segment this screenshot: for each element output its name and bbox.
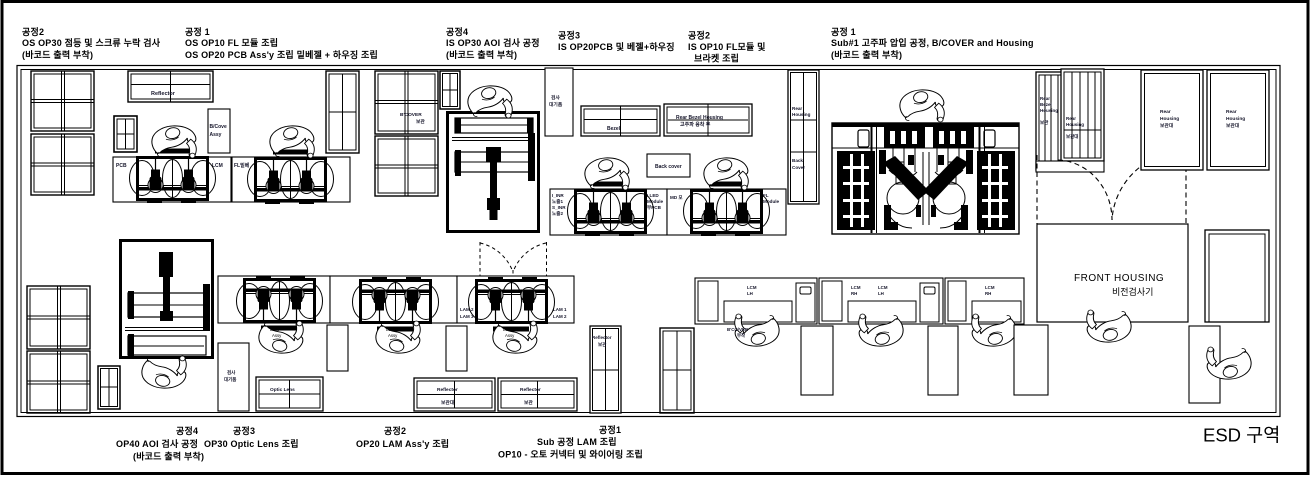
svg-text:IS OP30 AOI 검사 공정: IS OP30 AOI 검사 공정 [446, 37, 540, 48]
svg-text:공정3: 공정3 [233, 425, 255, 436]
svg-text:Sub#1 고주파 압입 공정, B/COVER and H: Sub#1 고주파 압입 공정, B/COVER and Housing [831, 37, 1034, 48]
svg-text:공정4: 공정4 [176, 425, 198, 436]
svg-text:Back: Back [792, 158, 803, 163]
svg-text:FRONT HOUSING: FRONT HOUSING [1074, 273, 1164, 284]
svg-text:보관: 보관 [524, 399, 533, 406]
svg-text:보관: 보관 [598, 341, 607, 348]
svg-text:부착: 부착 [737, 332, 745, 339]
svg-text:OP10 - 오토 커넥터 및 와이어링 조립: OP10 - 오토 커넥터 및 와이어링 조립 [498, 449, 643, 460]
svg-text:MD 모: MD 모 [670, 194, 683, 200]
svg-text:고주파 융착 후: 고주파 융착 후 [680, 121, 711, 128]
svg-text:Lens: Lens [270, 327, 279, 332]
svg-text:(바코드 출력 부착): (바코드 출력 부착) [22, 49, 93, 60]
svg-text:Housing: Housing [792, 112, 811, 117]
svg-text:Lens: Lens [386, 327, 395, 332]
svg-text:Module: Module [647, 199, 664, 204]
svg-text:Housing: Housing [1066, 122, 1084, 127]
svg-text:Reflector: Reflector [592, 335, 612, 340]
svg-text:Rear Bezel Housing: Rear Bezel Housing [676, 115, 723, 121]
svg-text:Assy: Assy [210, 132, 222, 138]
svg-text:Sub 공정 LAM 조립: Sub 공정 LAM 조립 [537, 436, 617, 447]
svg-text:공정 1: 공정 1 [185, 26, 210, 37]
svg-text:보관대: 보관대 [441, 399, 455, 406]
svg-text:보관: 보관 [416, 118, 425, 125]
svg-text:Cover: Cover [792, 165, 805, 170]
svg-text:Housing: Housing [1040, 108, 1058, 113]
svg-text:RH: RH [985, 291, 991, 296]
svg-text:LAM 1: LAM 1 [553, 307, 567, 312]
svg-text:Housing: Housing [1160, 116, 1179, 122]
svg-text:브라켓 조립: 브라켓 조립 [694, 53, 739, 64]
svg-text:Rear: Rear [792, 106, 802, 111]
svg-text:검사: 검사 [551, 94, 560, 101]
svg-text:LH: LH [878, 291, 884, 296]
svg-text:Reflector: Reflector [520, 387, 541, 393]
svg-text:공정1: 공정1 [599, 424, 621, 435]
svg-text:대기품: 대기품 [549, 101, 563, 108]
svg-text:ESD 구역: ESD 구역 [1203, 425, 1280, 446]
svg-text:공정 1: 공정 1 [831, 26, 856, 37]
svg-text:LAM 2: LAM 2 [460, 307, 474, 312]
svg-text:LCM: LCM [851, 285, 861, 290]
svg-text:Optic Lens: Optic Lens [270, 387, 295, 393]
svg-text:공정2: 공정2 [22, 26, 44, 37]
svg-text:RH: RH [851, 291, 857, 296]
svg-text:I_INR: I_INR [552, 193, 564, 198]
svg-text:B/Cove: B/Cove [210, 124, 227, 130]
svg-text:Assy: Assy [272, 333, 282, 338]
svg-text:B'CO/VER: B'CO/VER [727, 327, 749, 332]
svg-text:Module: Module [763, 199, 780, 204]
svg-text:LCM: LCM [878, 285, 888, 290]
svg-text:OS OP10 FL 모듈 조립: OS OP10 FL 모듈 조립 [185, 37, 278, 48]
svg-text:LAM 2: LAM 2 [553, 314, 567, 319]
svg-text:검사: 검사 [227, 369, 236, 376]
svg-text:OP30 Optic Lens 조립: OP30 Optic Lens 조립 [204, 438, 299, 449]
svg-text:LCM: LCM [985, 285, 995, 290]
svg-text:공정2: 공정2 [688, 30, 710, 41]
svg-text:노즐2: 노즐2 [552, 210, 563, 217]
svg-text:대기품: 대기품 [224, 376, 236, 383]
svg-text:FL밑베: FL밑베 [234, 162, 250, 169]
svg-text:보관대: 보관대 [1160, 122, 1174, 129]
svg-text:비전검사기: 비전검사기 [1112, 286, 1153, 297]
svg-text:FL: FL [763, 193, 769, 198]
svg-text:노즐1: 노즐1 [552, 198, 563, 205]
svg-text:(바코드 출력 부착): (바코드 출력 부착) [446, 49, 517, 60]
svg-text:(바코드 출력 부착): (바코드 출력 부착) [133, 450, 204, 461]
svg-text:Reflector: Reflector [151, 91, 176, 97]
svg-text:보관: 보관 [1040, 119, 1049, 126]
svg-text:PCB: PCB [116, 163, 127, 169]
svg-text:B'COVER: B'COVER [400, 112, 422, 118]
svg-text:Lens: Lens [503, 327, 512, 332]
svg-text:공정3: 공정3 [558, 30, 580, 41]
svg-text:LCM: LCM [747, 285, 757, 290]
svg-text:보관대: 보관대 [1226, 122, 1240, 129]
svg-text:Bezel: Bezel [1040, 102, 1052, 107]
svg-text:Bezel: Bezel [607, 126, 621, 132]
svg-text:S_INR: S_INR [552, 205, 566, 210]
svg-text:IS OP10 FL모듈 및: IS OP10 FL모듈 및 [688, 41, 766, 52]
svg-text:Rear: Rear [1040, 96, 1050, 101]
svg-text:OP20 LAM Ass'y 조립: OP20 LAM Ass'y 조립 [356, 438, 449, 449]
svg-text:Back cover: Back cover [655, 164, 682, 170]
svg-text:OS OP20 PCB Ass'y 조립 밑베젤 + 하우징: OS OP20 PCB Ass'y 조립 밑베젤 + 하우징 조립 [185, 49, 378, 60]
svg-text:Assy: Assy [388, 333, 398, 338]
svg-text:LH: LH [747, 291, 753, 296]
svg-text:IS OP20PCB 및 베젤+하우징: IS OP20PCB 및 베젤+하우징 [558, 41, 675, 52]
svg-text:공정4: 공정4 [446, 26, 468, 37]
svg-text:OS OP30 점등 및 스크류 누락 검사: OS OP30 점등 및 스크류 누락 검사 [22, 37, 161, 48]
svg-text:Rear: Rear [1066, 116, 1076, 121]
svg-text:Rear: Rear [1160, 109, 1171, 115]
svg-text:보관대: 보관대 [1066, 133, 1078, 140]
svg-text:Rear: Rear [1226, 109, 1237, 115]
svg-text:OP40 AOI 검사 공정: OP40 AOI 검사 공정 [116, 438, 198, 449]
svg-text:Housing: Housing [1226, 116, 1245, 122]
svg-text:공정2: 공정2 [384, 425, 406, 436]
svg-text:Reflector: Reflector [437, 387, 458, 393]
svg-text:(바코드 출력 부착): (바코드 출력 부착) [831, 49, 902, 60]
svg-text:Assy: Assy [505, 333, 515, 338]
